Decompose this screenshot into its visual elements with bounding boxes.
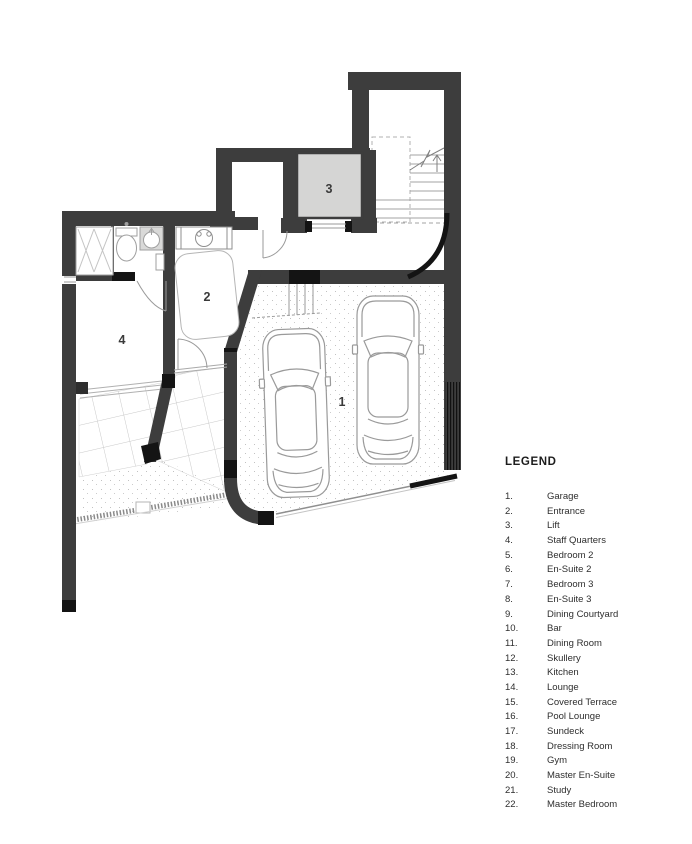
legend-item: 4.Staff Quarters <box>505 534 691 549</box>
legend-item: 16.Pool Lounge <box>505 710 691 725</box>
legend-title: LEGEND <box>505 456 691 468</box>
legend-item: 9.Dining Courtyard <box>505 608 691 623</box>
toilet <box>116 223 137 262</box>
room-label-lift: 3 <box>326 182 333 196</box>
legend: LEGEND 1.Garage 2.Entrance 3.Lift 4.Staf… <box>505 456 691 813</box>
laundry-counter <box>176 227 232 249</box>
legend-list: 1.Garage 2.Entrance 3.Lift 4.Staff Quart… <box>505 490 691 813</box>
legend-item: 2.Entrance <box>505 505 691 520</box>
room-label-entrance: 2 <box>204 290 211 304</box>
legend-item: 22.Master Bedroom <box>505 798 691 813</box>
legend-item: 15.Covered Terrace <box>505 696 691 711</box>
car-2 <box>353 296 424 464</box>
legend-item: 17.Sundeck <box>505 725 691 740</box>
legend-item: 3.Lift <box>505 519 691 534</box>
legend-item: 1.Garage <box>505 490 691 505</box>
sink <box>140 227 164 270</box>
legend-item: 20.Master En-Suite <box>505 769 691 784</box>
car-1 <box>258 328 335 498</box>
shower <box>76 227 113 275</box>
legend-item: 10.Bar <box>505 622 691 637</box>
legend-item: 13.Kitchen <box>505 666 691 681</box>
legend-item: 19.Gym <box>505 754 691 769</box>
room-label-garage: 1 <box>339 395 346 409</box>
legend-item: 21.Study <box>505 784 691 799</box>
legend-item: 7.Bedroom 3 <box>505 578 691 593</box>
legend-item: 6.En-Suite 2 <box>505 563 691 578</box>
legend-item: 11.Dining Room <box>505 637 691 652</box>
legend-item: 12.Skullery <box>505 652 691 667</box>
legend-item: 14.Lounge <box>505 681 691 696</box>
legend-item: 18.Dressing Room <box>505 740 691 755</box>
legend-item: 5.Bedroom 2 <box>505 549 691 564</box>
room-label-staff-quarters: 4 <box>119 333 126 347</box>
staircase <box>372 137 444 223</box>
legend-item: 8.En-Suite 3 <box>505 593 691 608</box>
